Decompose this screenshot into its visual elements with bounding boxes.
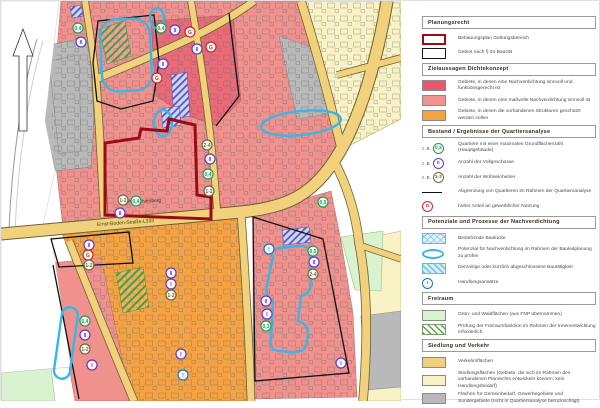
example-prefix: z. B.: [422, 146, 431, 151]
map-badge-units: 1-2: [166, 290, 176, 300]
svg-text:0,4: 0,4: [133, 199, 140, 205]
legend-swatch-hatch-cross-blue: [422, 233, 446, 244]
legend-item-label: hoher Anteil an gewerblicher Nutzung: [458, 204, 539, 210]
map-badge-grz: 0,4: [156, 23, 166, 33]
legend-item: Bestehende Baulücke: [422, 233, 596, 245]
map-badge-floors: I: [262, 309, 272, 319]
legend-swatch-line: [422, 192, 442, 193]
legend-item: z. B.IIAnzahl der Vollgeschosse: [422, 157, 596, 169]
map-badge-action: !: [264, 244, 274, 254]
legend-item-label: Abgrenzung von Quartieren im Rahmen der …: [458, 189, 591, 195]
map-badge-gewerbe: G: [83, 250, 93, 260]
map-badge-floors: II: [166, 268, 176, 278]
action-badge-icon: !: [422, 278, 452, 289]
map-badge-action: !: [178, 370, 188, 380]
legend-section-header: Potenziale und Prozesse der Nachverdicht…: [422, 216, 596, 229]
svg-text:0,5: 0,5: [320, 200, 327, 206]
legend-item: Gebiete, in denen eine maßvolle Nachverd…: [422, 95, 596, 107]
svg-text:0,4: 0,4: [82, 319, 89, 325]
map-badge-gewerbe: G: [206, 42, 216, 52]
map-badge-floors: I: [87, 360, 97, 370]
legend-item: Grün- und Waldflächen (aus FNP übernomme…: [422, 309, 596, 321]
legend-swatch-fill-d9f2cf: [422, 310, 446, 321]
legend-item-label: Bestehende Baulücke: [458, 236, 506, 242]
svg-text:0,5: 0,5: [310, 249, 317, 255]
map-badge-units: 1-2: [204, 186, 214, 196]
legend-item-label: Bebauungsplan Geltungsbereich: [458, 36, 529, 42]
svg-text:G: G: [209, 45, 213, 51]
map-badge-units: 1-2: [84, 260, 94, 270]
legend-item-label: Handlungsansätze: [458, 280, 499, 286]
floors-badge-icon: z. B.II: [422, 158, 452, 169]
map-canvas: Ernst-Boden-Straße-L333Am Hövenberg 0,4I…: [1, 1, 401, 401]
legend-item: Gebiet nach § 34 BauGB: [422, 48, 596, 60]
legend-item-label: Anzahl der Wohneinheiten: [458, 175, 515, 181]
legend-swatch-fill-f0928e: [422, 95, 446, 106]
legend-item: Prüfung der Freiraumfunktion im Rahmen d…: [422, 324, 596, 337]
map-badge-floors: II: [170, 25, 180, 35]
svg-text:0,3: 0,3: [263, 324, 270, 330]
map-badge-units: 2-4: [202, 140, 212, 150]
map-badge-grz: 0,4: [73, 23, 83, 33]
legend-section-header: Zielaussagen Dichtekonzept: [422, 63, 596, 76]
legend-item-label: Gebiete, in denen eine Nachverdichtung s…: [458, 80, 596, 93]
legend-item-label: Gebiet nach § 34 BauGB: [458, 50, 512, 56]
legend-sections: PlanungsrechtBebauungsplan Geltungsberei…: [422, 13, 596, 408]
legend-item: Potenzial für Nachverdichtung im Rahmen …: [422, 247, 596, 260]
legend-item-label: Gebiete, in denen die vorhandenen Strukt…: [458, 109, 596, 122]
legend-swatch-fill-f5a243: [422, 110, 446, 121]
legend-item: !Handlungsansätze: [422, 277, 596, 289]
legend-item-label: Gebiete, in denen eine maßvolle Nachverd…: [458, 98, 590, 104]
svg-text:G: G: [155, 76, 159, 82]
badge-symbol: G: [422, 201, 433, 212]
svg-text:0,4: 0,4: [205, 172, 212, 178]
map-badge-floors: II: [84, 240, 94, 250]
legend-item: Abgrenzung von Quartieren im Rahmen der …: [422, 186, 596, 198]
legend-swatch-fill-f8f2c4: [422, 375, 446, 386]
legend-item: z. B.1-2Anzahl der Wohneinheiten: [422, 172, 596, 184]
legend-item-label: Anzahl der Vollgeschosse: [458, 160, 514, 166]
svg-text:1-2: 1-2: [205, 189, 212, 195]
units-badge-icon: z. B.1-2: [422, 172, 452, 183]
map-badge-floors: II: [158, 59, 168, 69]
map-legend: PlanungsrechtBebauungsplan Geltungsberei…: [422, 13, 596, 408]
legend-item-label: Verkehrsflächen: [458, 359, 493, 365]
badge-symbol: !: [422, 278, 433, 289]
grz-badge-icon: z. B.0,3: [422, 143, 452, 154]
map-badge-gewerbe: G: [152, 73, 162, 83]
map-badge-floors: II: [80, 330, 90, 340]
legend-swatch-p34: [422, 48, 446, 59]
map-badge-grz: 0,4: [80, 316, 90, 326]
map-badge-floors: II: [192, 44, 202, 54]
legend-item-label: Derzeitige oder kürzlich abgeschlossene …: [458, 265, 573, 271]
legend-item-label: Prüfung der Freiraumfunktion im Rahmen d…: [458, 324, 596, 337]
svg-text:G: G: [188, 30, 192, 36]
legend-section-header: Siedlung und Verkehr: [422, 339, 596, 352]
map-badge-floors: I: [336, 358, 346, 368]
svg-text:0,4: 0,4: [158, 26, 165, 32]
map-badge-floors: II: [205, 154, 215, 164]
legend-item: Flächen für Gemeinbedarf, Gewerbegebiete…: [422, 392, 596, 405]
legend-item: z. B.0,3Quartiere mit einer maximalen Gr…: [422, 142, 596, 155]
svg-text:1-2: 1-2: [119, 198, 126, 204]
map-badge-floors: II: [115, 208, 125, 218]
gewerbe-badge-icon: G: [422, 201, 452, 212]
badge-symbol: II: [433, 158, 444, 169]
badge-symbol: 1-2: [433, 172, 444, 183]
legend-swatch-hatch-diag-green: [422, 324, 446, 335]
legend-item-label: Siedlungsflächen (Gebiete, die sich im R…: [458, 371, 596, 390]
legend-item: Gebiete, in denen die vorhandenen Strukt…: [422, 109, 596, 122]
legend-swatch-fill-b9b9b9: [422, 393, 446, 404]
legend-item-label: Potenzial für Nachverdichtung im Rahmen …: [458, 247, 596, 260]
legend-section-header: Planungsrecht: [422, 16, 596, 29]
svg-text:1-2: 1-2: [85, 263, 92, 269]
map-badge-gewerbe: G: [185, 27, 195, 37]
map-badge-floors: I: [176, 349, 186, 359]
map-badge-units: 2-4: [308, 269, 318, 279]
legend-section-header: Freiraum: [422, 292, 596, 305]
map-badge-floors: I: [166, 279, 176, 289]
legend-section-header: Bestand / Ergebnisse der Quartiersanalys…: [422, 125, 596, 138]
legend-item-label: Grün- und Waldflächen (aus FNP übernomme…: [458, 312, 562, 318]
map-badge-floors: II: [309, 257, 319, 267]
map-badge-floors: II: [76, 37, 86, 47]
city-plan-map: Ernst-Boden-Straße-L333Am Hövenberg 0,4I…: [1, 1, 401, 401]
legend-swatch-bplan: [422, 34, 446, 45]
map-badge-grz: 0,3: [261, 321, 271, 331]
map-badge-units: 1-2: [80, 344, 90, 354]
svg-text:2-4: 2-4: [203, 143, 210, 149]
svg-text:G: G: [86, 253, 90, 259]
svg-text:1-2: 1-2: [81, 347, 88, 353]
legend-swatch-fill-e8576b: [422, 80, 446, 91]
hatch-indigo-3: [282, 227, 311, 245]
legend-item: Derzeitige oder kürzlich abgeschlossene …: [422, 263, 596, 275]
map-badge-grz: 0,5: [308, 246, 318, 256]
svg-text:0,4: 0,4: [75, 26, 82, 32]
map-badge-grz: 0,5: [318, 197, 328, 207]
legend-swatch-blob: [422, 249, 444, 259]
hatch-indigo-4: [70, 5, 83, 18]
legend-item: Ghoher Anteil an gewerblicher Nutzung: [422, 201, 596, 213]
svg-text:2-4: 2-4: [309, 272, 316, 278]
legend-swatch-fill-f1d17b: [422, 357, 446, 368]
map-badge-grz: 0,4: [131, 196, 141, 206]
planning-map-page: { "map": { "street_labels": [ {"text": "…: [0, 0, 600, 400]
legend-swatch-hatch-diag-blue: [422, 263, 446, 274]
badge-symbol: 0,3: [433, 143, 444, 154]
svg-text:1-2: 1-2: [167, 293, 174, 299]
map-badge-units: 1-2: [118, 195, 128, 205]
example-prefix: z. B.: [422, 175, 431, 180]
legend-item-label: Quartiere mit einer maximalen Grundfläch…: [458, 142, 596, 155]
legend-item: Gebiete, in denen eine Nachverdichtung s…: [422, 80, 596, 93]
map-badge-grz: 0,4: [203, 169, 213, 179]
example-prefix: z. B.: [422, 161, 431, 166]
legend-item-label: Flächen für Gemeinbedarf, Gewerbegebiete…: [458, 392, 596, 405]
zone-green-bottomleft: [1, 368, 55, 401]
legend-item: Verkehrsflächen: [422, 356, 596, 368]
map-badge-floors: II: [261, 296, 271, 306]
legend-item: Bebauungsplan Geltungsbereich: [422, 33, 596, 45]
legend-item: Siedlungsflächen (Gebiete, die sich im R…: [422, 371, 596, 390]
